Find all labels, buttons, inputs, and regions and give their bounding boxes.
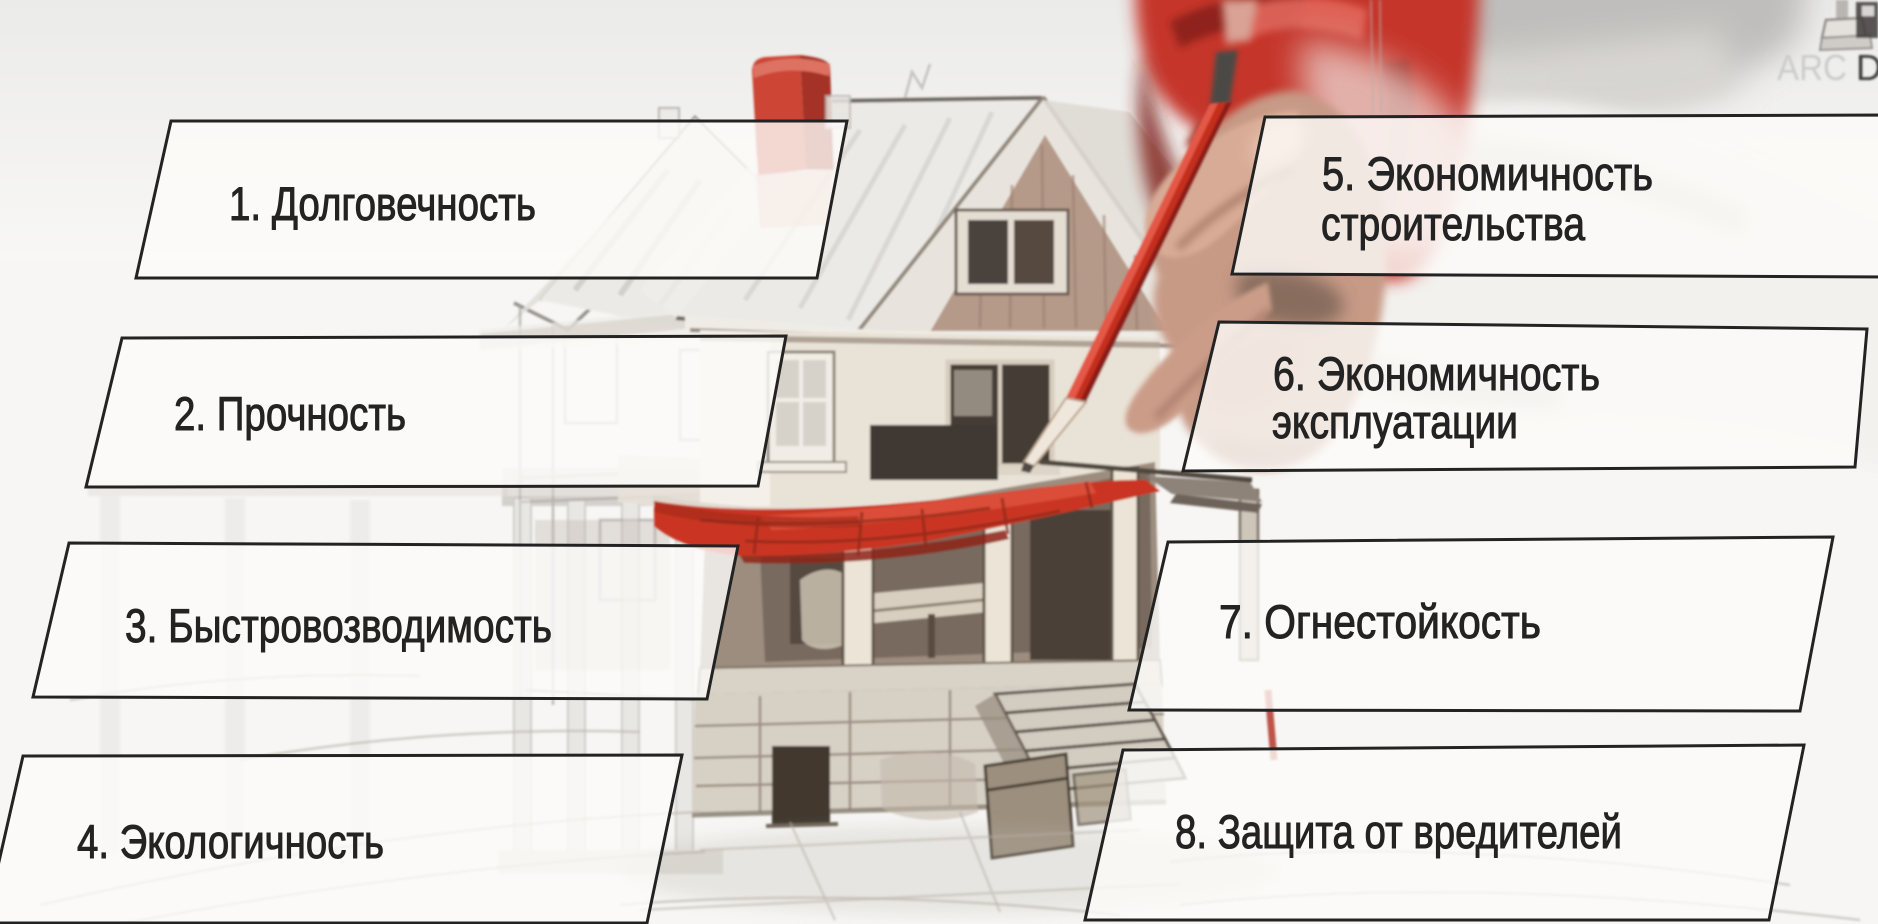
svg-text:4. Экологичность: 4. Экологичность xyxy=(77,815,384,868)
svg-text:D: D xyxy=(1856,47,1878,88)
svg-text:7. Огнестойкость: 7. Огнестойкость xyxy=(1219,595,1541,648)
svg-text:8. Защита от вредителей: 8. Защита от вредителей xyxy=(1175,805,1622,858)
svg-text:1. Долговечность: 1. Долговечность xyxy=(229,177,536,230)
svg-text:2. Прочность: 2. Прочность xyxy=(174,387,406,440)
svg-text:6. Экономичность: 6. Экономичность xyxy=(1273,347,1600,400)
svg-text:ARC: ARC xyxy=(1777,47,1847,88)
svg-text:3. Быстровозводимость: 3. Быстровозводимость xyxy=(125,599,552,652)
svg-text:эксплуатации: эксплуатации xyxy=(1272,395,1518,448)
svg-text:строительства: строительства xyxy=(1321,197,1586,250)
svg-text:5. Экономичность: 5. Экономичность xyxy=(1322,147,1653,200)
